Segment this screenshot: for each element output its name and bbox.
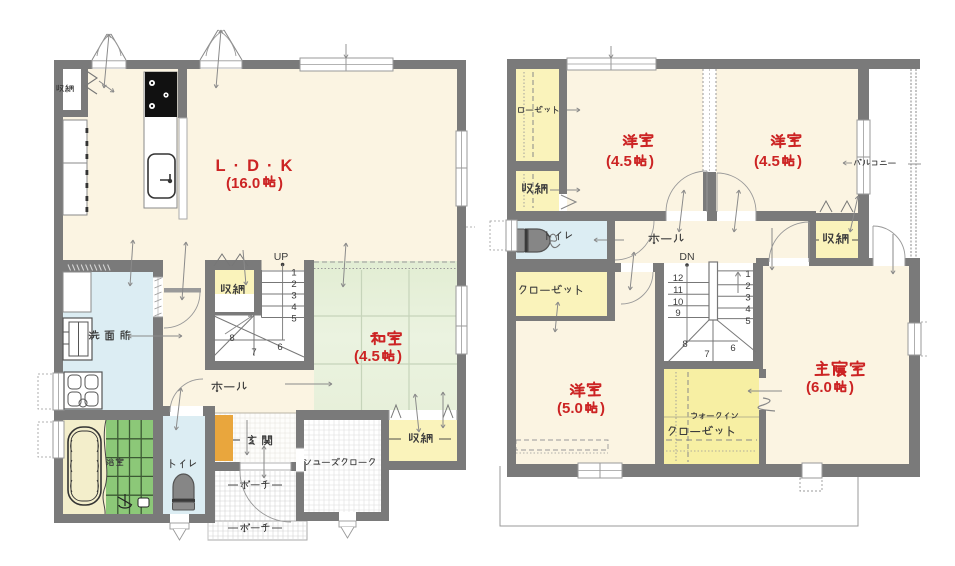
svg-text:7: 7 [251, 347, 256, 358]
svg-text:2: 2 [745, 281, 750, 292]
svg-text:9: 9 [675, 308, 680, 319]
svg-text:2: 2 [291, 279, 296, 290]
svg-text:(6.0: (6.0 [806, 379, 832, 396]
svg-text:4: 4 [291, 302, 296, 313]
svg-text:1: 1 [745, 269, 750, 280]
svg-text:(4.5: (4.5 [606, 153, 632, 170]
svg-text:): ) [397, 348, 402, 365]
svg-text:DN: DN [679, 251, 694, 263]
svg-text:11: 11 [673, 285, 683, 296]
svg-text:5: 5 [291, 314, 296, 325]
svg-text:10: 10 [673, 297, 684, 308]
svg-text:6: 6 [730, 343, 735, 354]
svg-text:(5.0: (5.0 [557, 400, 583, 417]
svg-text:6: 6 [277, 342, 282, 353]
svg-text:5: 5 [745, 316, 750, 327]
svg-text:7: 7 [704, 349, 709, 360]
svg-text:1: 1 [291, 268, 296, 279]
svg-text:): ) [649, 153, 654, 170]
svg-text:(4.5: (4.5 [354, 348, 380, 365]
svg-text:3: 3 [745, 293, 750, 304]
svg-text:): ) [797, 153, 802, 170]
svg-text:UP: UP [274, 251, 289, 263]
svg-text:): ) [278, 175, 283, 192]
svg-text:12: 12 [673, 273, 684, 284]
svg-text:): ) [600, 400, 605, 417]
svg-text:3: 3 [291, 291, 296, 302]
svg-text:8: 8 [229, 333, 234, 344]
svg-text:): ) [849, 379, 854, 396]
svg-text:L·D·K: L·D·K [216, 157, 301, 175]
svg-text:4: 4 [745, 304, 750, 315]
svg-text:(16.0: (16.0 [226, 175, 260, 192]
svg-text:(4.5: (4.5 [754, 153, 780, 170]
